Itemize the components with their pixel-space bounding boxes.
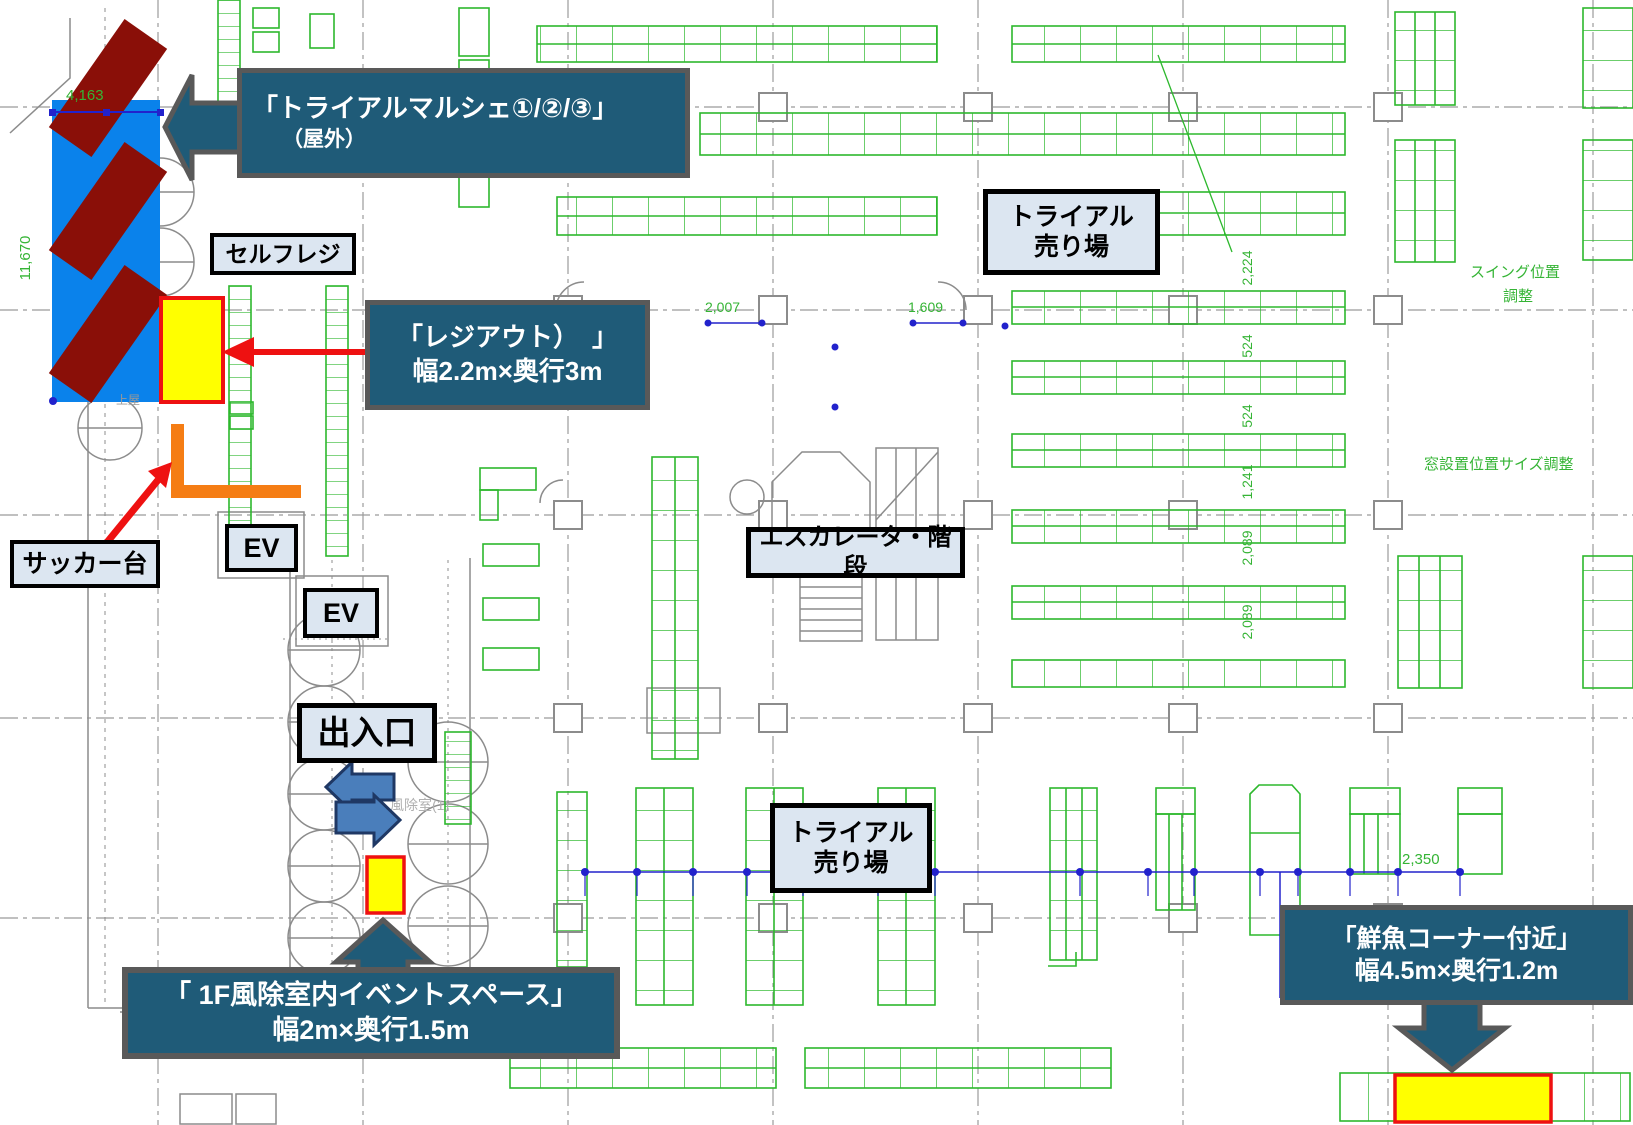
note-canopy: 上屋 (116, 393, 140, 407)
label-sales-floor-upper-line2: 売り場 (1034, 232, 1109, 263)
dim-2224: 2,224 (1239, 250, 1255, 285)
dim-11670: 11,670 (17, 236, 34, 281)
label-sacker-table-text: サッカー台 (22, 549, 147, 580)
callout-fresh-fish-line1: 「鮮魚コーナー付近」 (1331, 923, 1581, 956)
dim-1241: 1,241 (1239, 464, 1255, 499)
dim-524-a: 524 (1239, 334, 1255, 358)
label-elevator-upper-text: EV (243, 532, 279, 565)
label-sales-floor-lower-line2: 売り場 (813, 848, 888, 879)
callout-event-space: 「 1F風除室内イベントスペース」 幅2m×奥行1.5m (122, 967, 620, 1059)
room-vestibule-label: 風除室(1) (390, 797, 449, 813)
callout-event-space-line2: 幅2m×奥行1.5m (272, 1013, 469, 1048)
dim-524-b: 524 (1239, 404, 1255, 428)
callout-regi-out: 「レジアウト） 」 幅2.2m×奥行3m (365, 300, 650, 410)
note-window: 窓設置位置サイズ調整 (1424, 455, 1574, 473)
label-sacker-table: サッカー台 (10, 540, 160, 588)
regi-out-highlight (161, 298, 223, 402)
label-escalator-stairs-text: エスカレータ・階段 (751, 523, 960, 582)
label-escalator-stairs: エスカレータ・階段 (746, 527, 965, 578)
dim-4163: 4,163 (66, 87, 104, 104)
callout-regi-out-line2: 幅2.2m×奥行3m (412, 355, 602, 389)
fresh-fish-highlight (1395, 1075, 1551, 1122)
callout-fresh-fish: 「鮮魚コーナー付近」 幅4.5m×奥行1.2m (1280, 905, 1633, 1005)
dim-2089-a: 2,089 (1239, 530, 1255, 565)
label-elevator-lower: EV (303, 588, 379, 638)
callout-trial-marche-line1: 「トライアルマルシェ①/②/③」 (252, 92, 675, 126)
label-elevator-lower-text: EV (323, 597, 359, 630)
callout-event-space-line1: 「 1F風除室内イベントスペース」 (164, 978, 578, 1013)
label-sales-floor-lower-line1: トライアル (789, 818, 914, 849)
label-sales-floor-lower: トライアル 売り場 (770, 803, 932, 893)
callout-fresh-fish-line2: 幅4.5m×奥行1.2m (1355, 955, 1559, 988)
label-entrance-text: 出入口 (318, 713, 417, 753)
dim-2007: 2,007 (705, 299, 740, 315)
dim-2350: 2,350 (1402, 851, 1440, 868)
label-self-checkout: セルフレジ (210, 233, 356, 275)
note-swing-line2: 調整 (1503, 288, 1533, 305)
arrow-to-fresh-fish-icon (1399, 1000, 1505, 1070)
callout-regi-out-line1: 「レジアウト） 」 (397, 321, 618, 355)
event-space-highlight (367, 857, 404, 913)
label-entrance: 出入口 (297, 703, 437, 763)
label-elevator-upper: EV (225, 524, 298, 572)
floor-plan-page: 4,163 11,670 2,007 1,609 2,224 524 524 1… (0, 0, 1633, 1125)
dim-1609: 1,609 (908, 299, 943, 315)
label-sales-floor-upper-line1: トライアル (1009, 202, 1134, 233)
red-arrow-to-sacker-table-icon (104, 462, 172, 546)
dim-2089-b: 2,089 (1239, 604, 1255, 639)
callout-trial-marche-line2: （屋外） (282, 126, 675, 153)
callout-trial-marche: 「トライアルマルシェ①/②/③」 （屋外） (237, 68, 690, 178)
note-swing-line1: スイング位置 (1470, 264, 1560, 281)
label-self-checkout-text: セルフレジ (226, 240, 341, 268)
label-sales-floor-upper: トライアル 売り場 (983, 189, 1160, 275)
